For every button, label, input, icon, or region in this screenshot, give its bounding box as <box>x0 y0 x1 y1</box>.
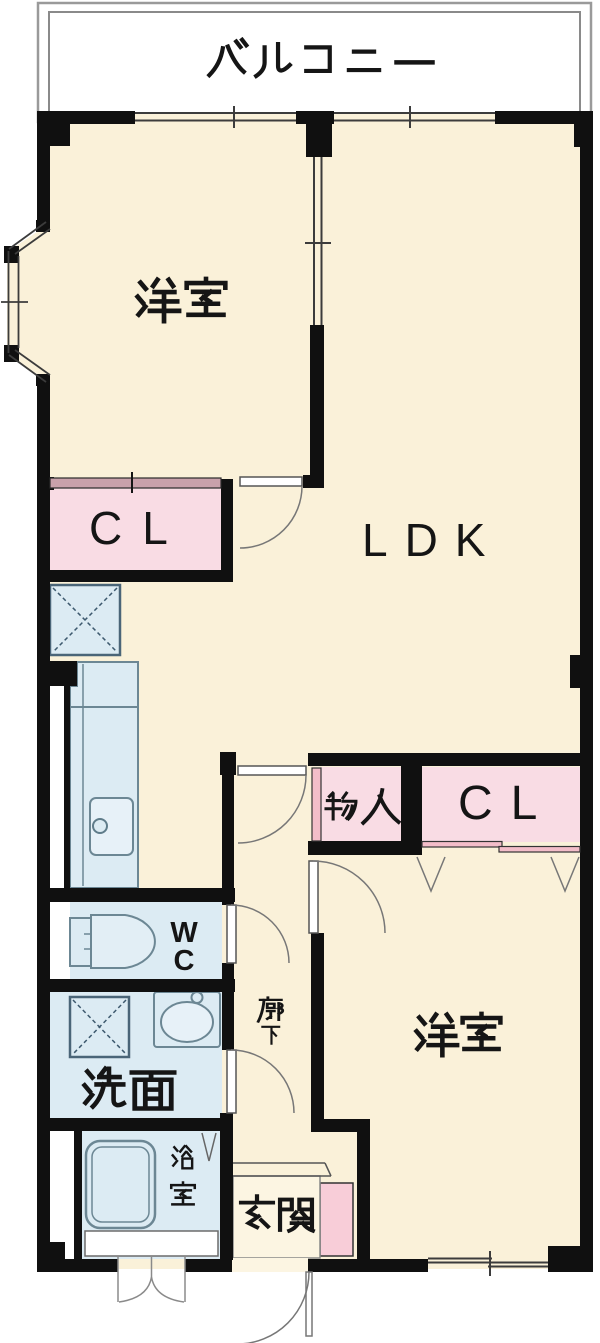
svg-text:LDK: LDK <box>362 514 502 566</box>
svg-text:CL: CL <box>89 502 188 554</box>
svg-text:C: C <box>174 945 195 977</box>
svg-text:CL: CL <box>458 777 555 830</box>
